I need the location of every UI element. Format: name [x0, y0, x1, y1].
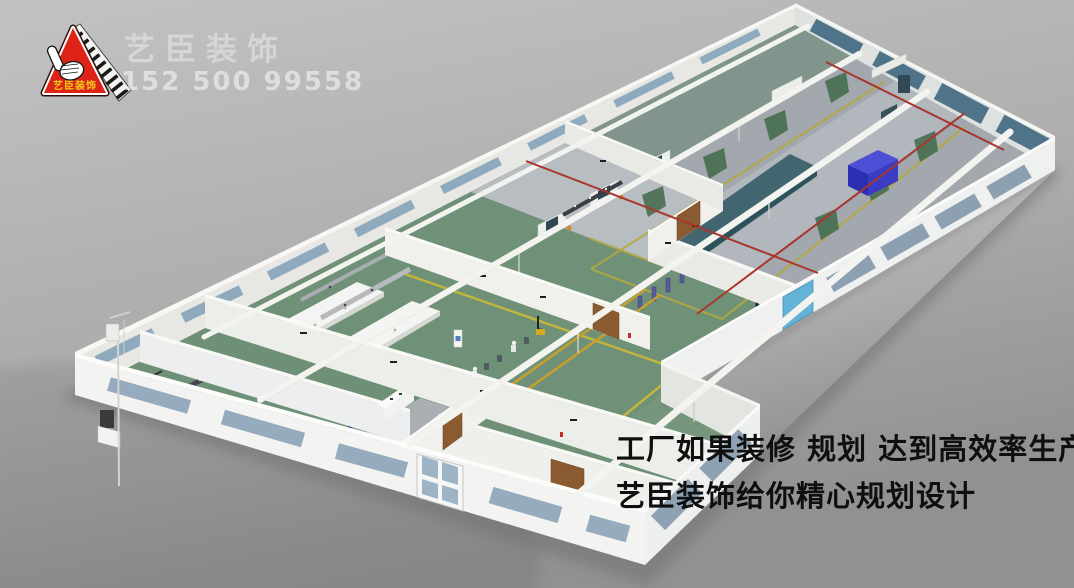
fire-sign [628, 333, 631, 338]
factory-render-page: 艺臣装饰 艺臣装饰 152 500 99558 工厂如果装修 规划 达到高效率生… [0, 0, 1074, 588]
logo-badge-text: 艺臣装饰 [53, 79, 97, 92]
slogan-line-2: 艺臣装饰给你精心规划设计 [616, 479, 976, 513]
factory-render: 艺臣装饰 艺臣装饰 152 500 99558 工厂如果装修 规划 达到高效率生… [0, 0, 1074, 588]
watermark-brand: 艺臣装饰 [124, 32, 288, 68]
wall-recess [100, 410, 114, 428]
fire-sign [560, 432, 563, 437]
watermark-phone: 152 500 99558 [121, 67, 364, 97]
slogan-line-1: 工厂如果装修 规划 达到高效率生产 [616, 432, 1074, 466]
dark-cabinet [898, 75, 910, 93]
water-dispenser [454, 330, 462, 347]
